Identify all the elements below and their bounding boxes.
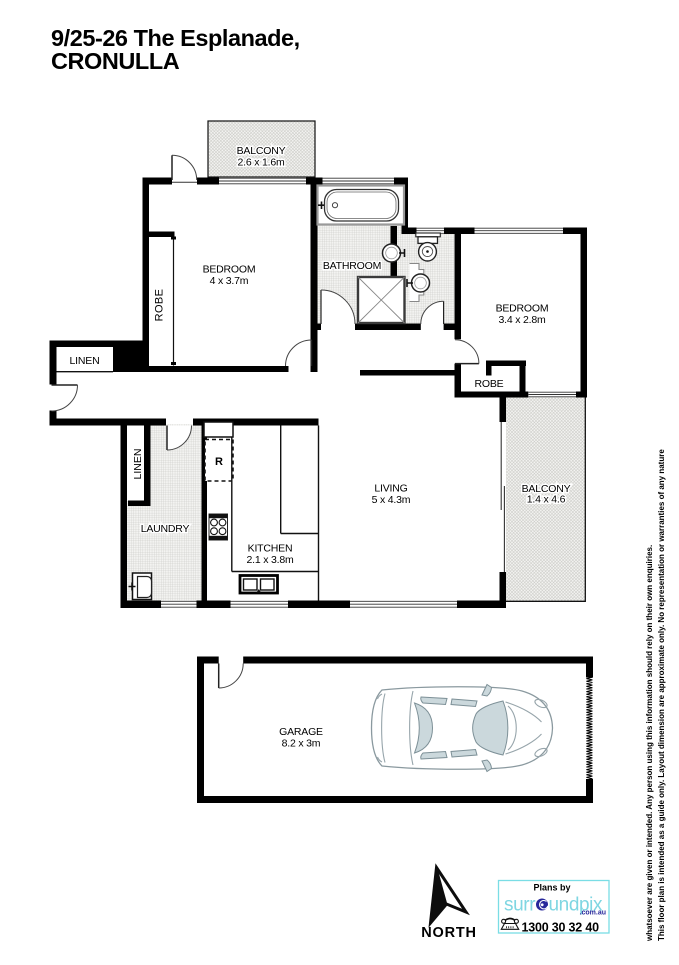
svg-text:ROBE: ROBE xyxy=(154,289,166,322)
svg-text:ROBE: ROBE xyxy=(475,378,504,390)
svg-text:2.1 x 3.8m: 2.1 x 3.8m xyxy=(246,554,293,566)
svg-text:This floor plan is intended as: This floor plan is intended as a guide o… xyxy=(657,449,666,941)
svg-text:BEDROOM: BEDROOM xyxy=(496,303,549,315)
svg-text:LINEN: LINEN xyxy=(70,355,100,367)
svg-text:BALCONY: BALCONY xyxy=(237,145,286,157)
svg-text:CRONULLA: CRONULLA xyxy=(51,48,180,74)
svg-text:whatsoever are given or intend: whatsoever are given or intended. Any pe… xyxy=(645,545,654,942)
svg-text:surr: surr xyxy=(504,895,536,916)
svg-text:8.2 x 3m: 8.2 x 3m xyxy=(282,738,321,750)
svg-text:4 x 3.7m: 4 x 3.7m xyxy=(210,275,249,287)
svg-text:1.4 x 4.6: 1.4 x 4.6 xyxy=(527,494,566,506)
svg-text:LAUNDRY: LAUNDRY xyxy=(141,523,190,535)
svg-text:Plans by: Plans by xyxy=(533,883,570,893)
svg-text:LIVING: LIVING xyxy=(374,483,407,495)
svg-text:2.6 x 1.6m: 2.6 x 1.6m xyxy=(237,157,284,169)
svg-text:3.4 x 2.8m: 3.4 x 2.8m xyxy=(498,314,545,326)
svg-text:5 x 4.3m: 5 x 4.3m xyxy=(372,494,411,506)
svg-text:1300 30 32 40: 1300 30 32 40 xyxy=(522,921,600,935)
svg-text:.com.au: .com.au xyxy=(580,910,606,917)
svg-text:BATHROOM: BATHROOM xyxy=(323,260,381,272)
svg-text:LINEN: LINEN xyxy=(132,449,144,480)
svg-text:R: R xyxy=(215,456,223,468)
svg-text:KITCHEN: KITCHEN xyxy=(248,543,293,555)
svg-text:BEDROOM: BEDROOM xyxy=(203,264,256,276)
svg-text:GARAGE: GARAGE xyxy=(279,726,323,738)
svg-text:NORTH: NORTH xyxy=(421,925,477,941)
